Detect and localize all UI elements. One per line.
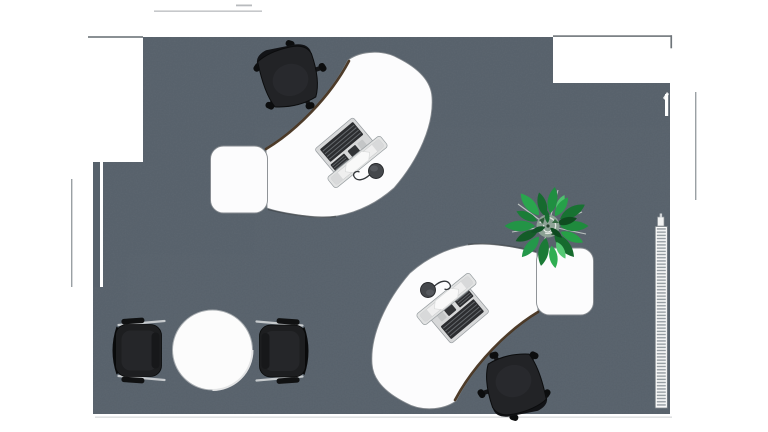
radiator-valve-stem <box>660 214 662 218</box>
radiator[interactable] <box>655 214 667 409</box>
visitor-chair-left[interactable] <box>113 317 165 383</box>
visitor-chair-right[interactable] <box>257 318 309 384</box>
dimension-tick <box>236 5 252 7</box>
exterior-line-right <box>695 92 696 200</box>
wall-tick-top-right <box>670 35 672 48</box>
radiator-valve <box>658 217 665 226</box>
floorplan-stage <box>0 0 768 432</box>
meeting-table[interactable] <box>173 310 253 390</box>
exterior-line-left <box>71 179 72 287</box>
left-wall-strip <box>93 162 100 287</box>
wall-line-top-right <box>553 35 672 37</box>
wall-line-top-left <box>88 36 143 38</box>
dimension-line <box>154 11 262 12</box>
radiator-fins <box>657 228 666 407</box>
bottom-edge-line <box>95 417 672 418</box>
